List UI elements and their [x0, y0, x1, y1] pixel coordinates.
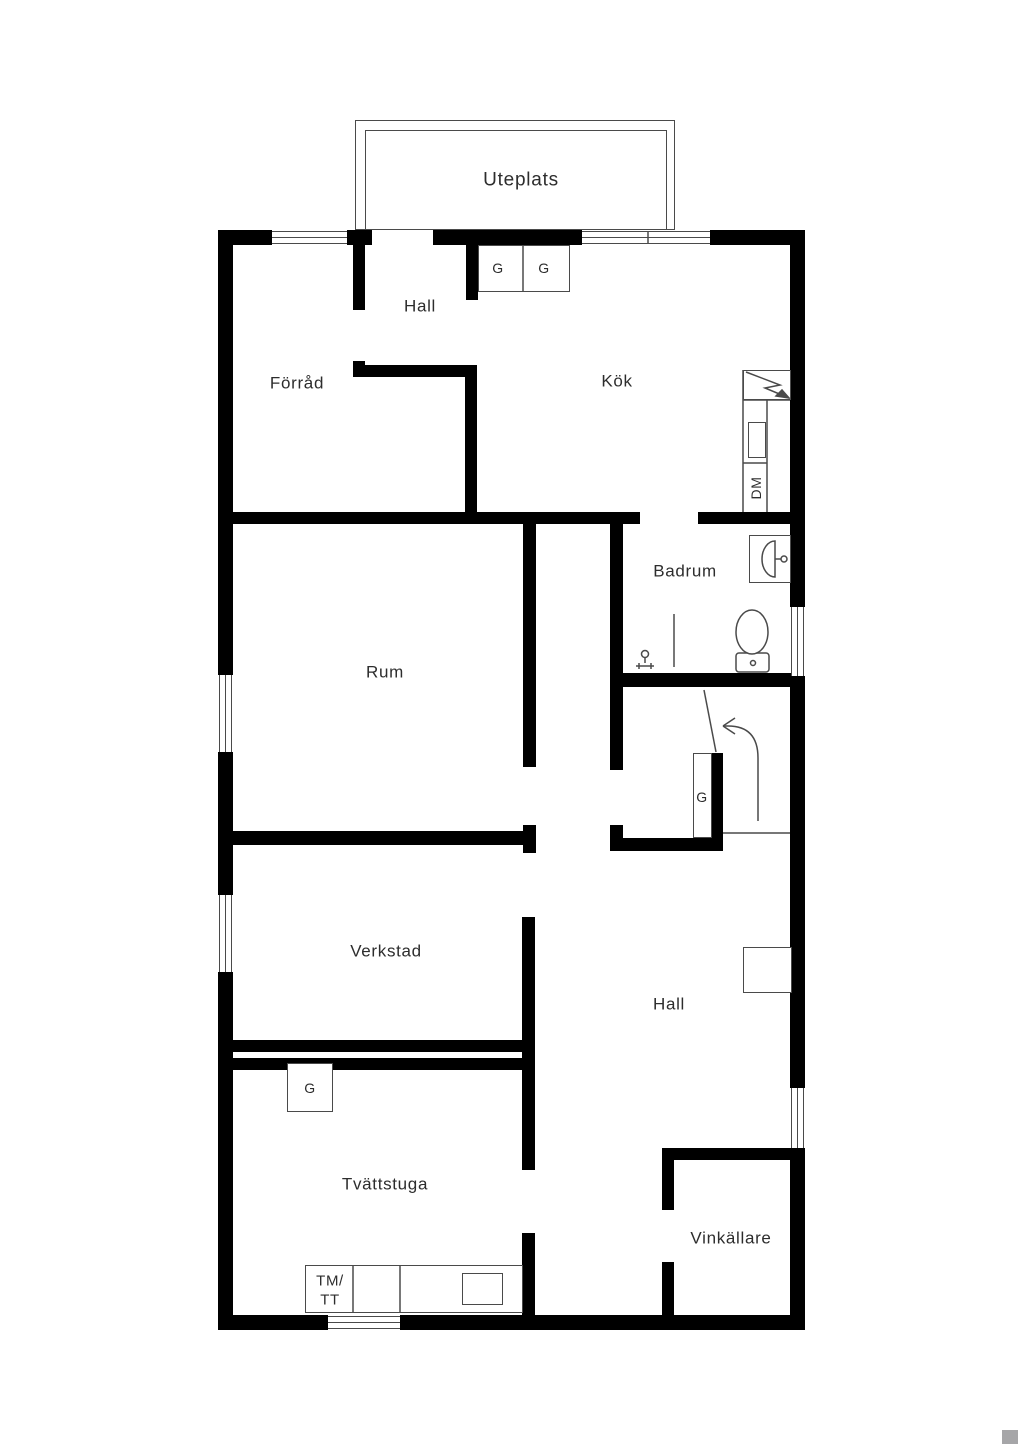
- stair-cut-line: [704, 690, 716, 752]
- toilet-button-circle: [751, 661, 756, 666]
- toilet-bowl: [736, 610, 768, 654]
- label-forrad: Förråd: [270, 375, 324, 392]
- fixtures-layer: [0, 0, 1024, 1448]
- stove-bolt-tip: [776, 390, 789, 398]
- label-uteplats: Uteplats: [483, 171, 559, 190]
- label-hall-lower: Hall: [653, 996, 685, 1013]
- stair-arrow: [723, 726, 758, 821]
- label-tm-line1: TM/: [316, 1274, 344, 1289]
- label-g-kitchen-2: G: [538, 261, 549, 275]
- label-g-stairs: G: [696, 790, 707, 804]
- sink-tap-circle: [781, 556, 787, 562]
- label-kok: Kök: [601, 373, 632, 390]
- drain-head-circle: [642, 651, 649, 658]
- label-verkstad: Verkstad: [350, 943, 422, 960]
- label-badrum: Badrum: [653, 563, 717, 580]
- drain-stand: [636, 657, 654, 669]
- bath-sink-basin: [762, 541, 775, 577]
- label-vinkallare: Vinkällare: [690, 1230, 771, 1247]
- label-g-kitchen-1: G: [492, 261, 503, 275]
- label-hall-upper: Hall: [404, 298, 436, 315]
- label-rum: Rum: [366, 664, 404, 681]
- label-tvattstuga: Tvättstuga: [342, 1176, 428, 1193]
- label-tm-line2: TT: [320, 1293, 340, 1308]
- label-g-laundry: G: [304, 1081, 315, 1095]
- label-dm: DM: [749, 477, 763, 500]
- floor-plan-canvas: UteplatsHallFörrådKökGGDMBadrumRumGVerks…: [0, 0, 1024, 1448]
- watermark-square: [1002, 1430, 1018, 1444]
